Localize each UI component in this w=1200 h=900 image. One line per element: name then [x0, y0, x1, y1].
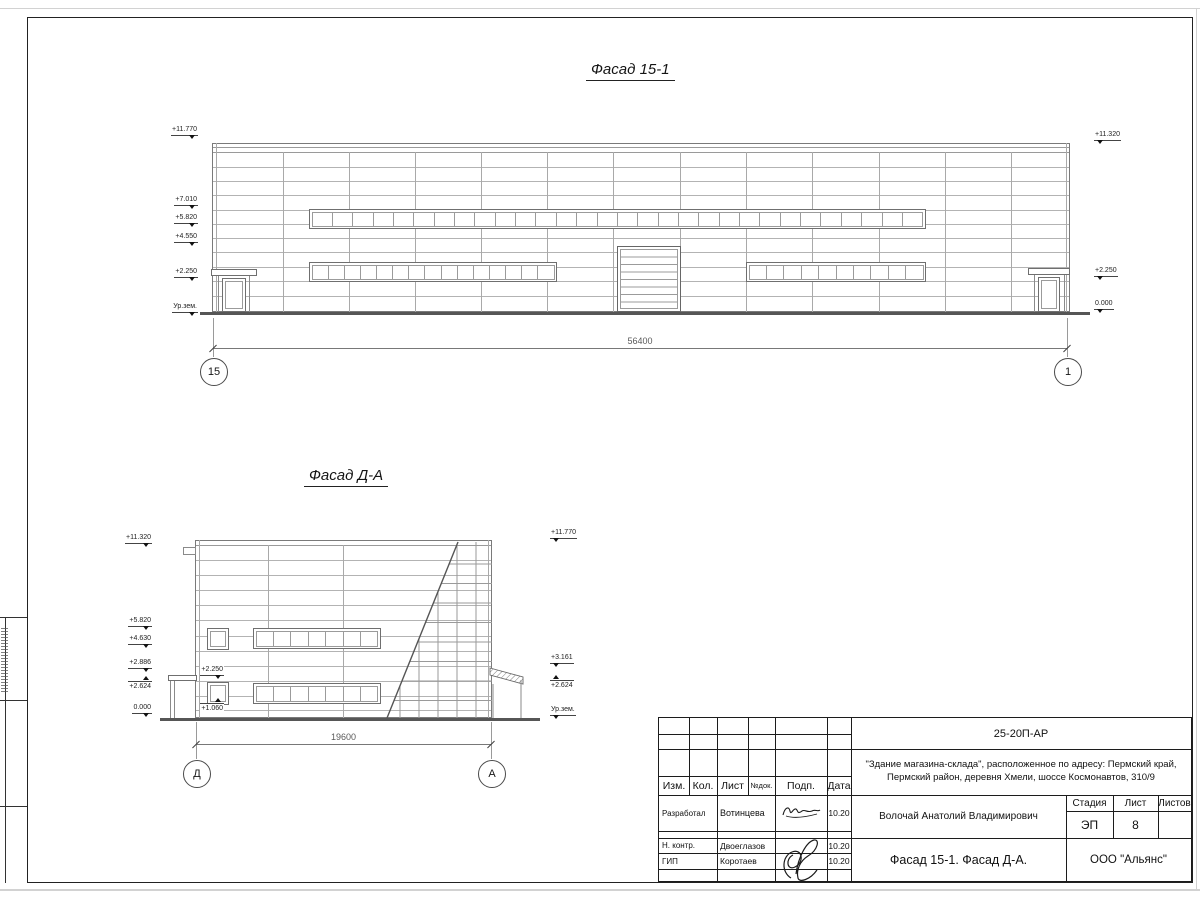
col-header-list: Лист [717, 776, 748, 795]
elevation-mark-symbol [143, 626, 149, 630]
axis-circle: А [478, 760, 506, 788]
row-role: Н. контр. [659, 838, 717, 853]
elevation-mark: +5.820 [100, 617, 152, 627]
elevation-mark: Ур.зем. [550, 706, 602, 716]
signature-gip [777, 832, 825, 884]
object-name-line2: Пермский район, деревня Хмели, шоссе Кос… [887, 772, 1155, 785]
drawing-name: Фасад 15-1. Фасад Д-А. [851, 838, 1066, 881]
drawing-sheet: Фасад 15-1 Фасад Д-А +11.770+7.010+5.820… [0, 0, 1200, 900]
elevation-mark-symbol [143, 668, 149, 672]
company-name: ООО "Альянс" [1066, 838, 1191, 881]
elevation-mark-symbol [553, 663, 559, 667]
object-name-line1: "Здание магазина-склада", расположенное … [865, 759, 1176, 772]
elevation-mark: +3.161 [550, 654, 602, 664]
col-header-kol: Кол. [689, 776, 717, 795]
sheets-value [1158, 811, 1191, 838]
stage-value: ЭП [1066, 811, 1113, 838]
chief-name: Волочай Анатолий Владимирович [851, 795, 1066, 838]
row-name: Вотинцева [717, 795, 775, 831]
doc-number: 25-20П-АР [851, 718, 1191, 749]
dimension-line [196, 744, 491, 745]
elevation-mark-symbol [143, 644, 149, 648]
facade2-right-canopy [490, 668, 523, 684]
col-header-izm: Изм. [659, 776, 689, 795]
elevation-mark: +2.624 [100, 681, 152, 691]
signature-votintseva [779, 803, 823, 821]
elevation-mark-symbol [143, 543, 149, 547]
dimension-extension [491, 722, 492, 759]
elevation-mark: +2.624 [550, 680, 602, 690]
facade2-diagonal [387, 542, 458, 718]
sheets-label: Листов [1158, 795, 1191, 811]
elevation-mark: 0.000 [100, 704, 152, 714]
row-name: Коротаев [717, 853, 775, 869]
row-name: Двоеглазов [717, 838, 775, 853]
dimension-label: 19600 [328, 732, 359, 742]
facade2-curtain-grid [160, 538, 540, 720]
title-block: Изм. Кол. Лист №док. Подп. Дата Разработ… [658, 717, 1192, 882]
row-role: ГИП [659, 853, 717, 869]
dimension-extension [196, 722, 197, 759]
row-date: 10.20 [827, 838, 851, 853]
sheet-label: Лист [1113, 795, 1158, 811]
stage-label: Стадия [1066, 795, 1113, 811]
col-header-ndok: №док. [748, 776, 775, 795]
elevation-mark: +2.886 [100, 659, 152, 669]
row-role: Разработал [659, 795, 717, 831]
object-name: "Здание магазина-склада", расположенное … [851, 749, 1191, 795]
elevation-mark-symbol [553, 675, 559, 679]
axis-circle: Д [183, 760, 211, 788]
col-header-data: Дата [827, 776, 851, 795]
col-header-podp: Подп. [775, 776, 827, 795]
elevation-mark-label: +2.624 [550, 680, 574, 690]
row-date: 10.20 [827, 795, 851, 831]
elevation-mark-symbol [553, 538, 559, 542]
elevation-mark: +11.320 [100, 534, 152, 544]
elevation-mark-symbol [553, 715, 559, 719]
elevation-mark-label: +2.624 [128, 681, 152, 691]
elevation-mark-symbol [143, 713, 149, 717]
elevation-mark: +4.630 [100, 635, 152, 645]
elevation-mark-symbol [143, 676, 149, 680]
row-date: 10.20 [827, 853, 851, 869]
elevation-mark: +11.770 [550, 529, 602, 539]
sheet-value: 8 [1113, 811, 1158, 838]
